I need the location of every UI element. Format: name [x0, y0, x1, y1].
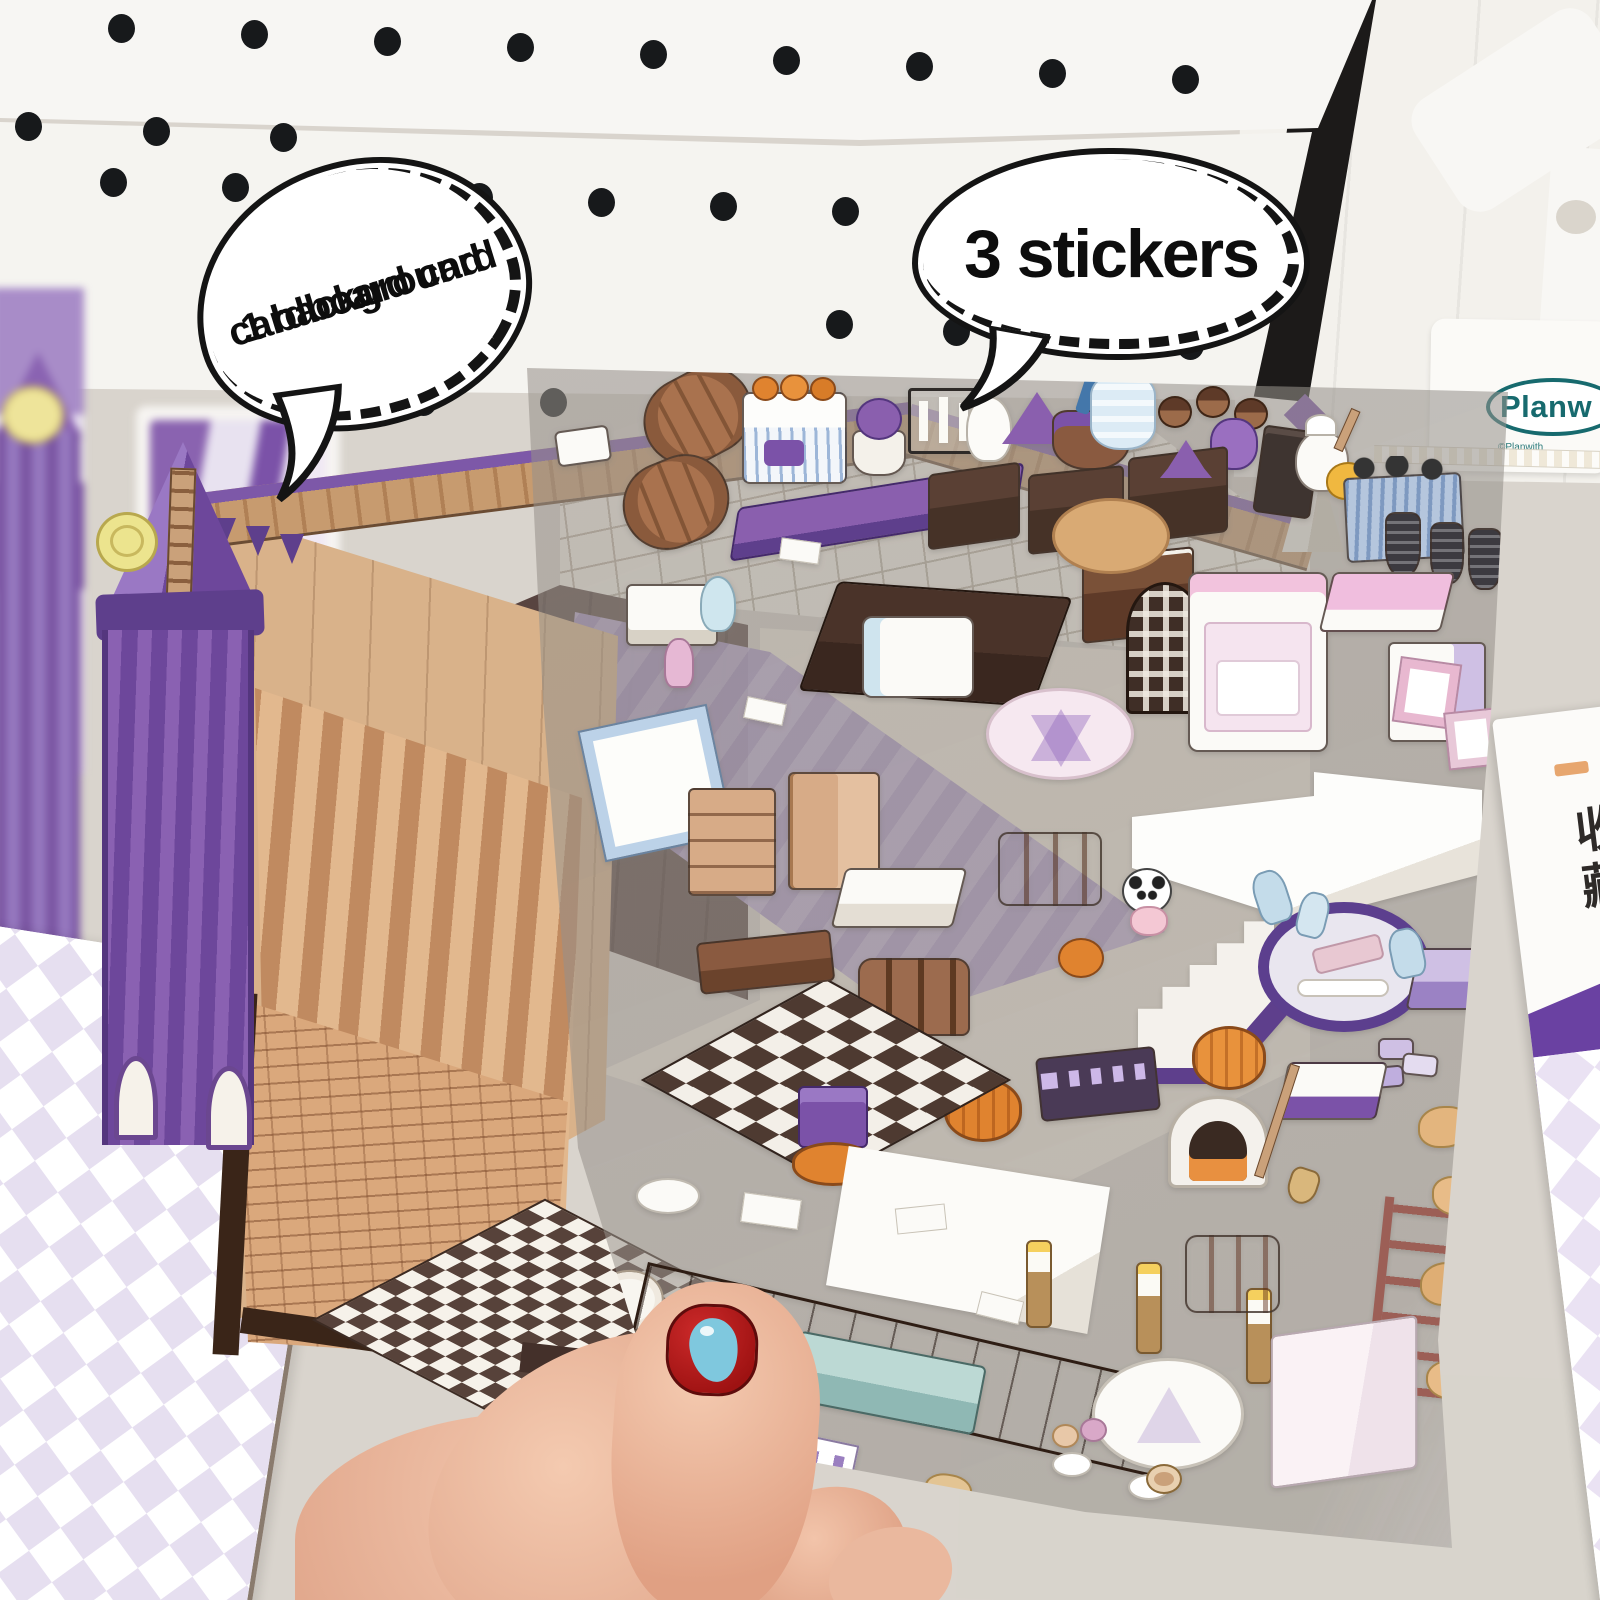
callout-right: 3 stickers	[912, 148, 1310, 360]
callout-right-label: 3 stickers	[964, 215, 1258, 293]
pool-bench-pink	[1311, 933, 1385, 975]
sticker-lavender-book-2	[1401, 1052, 1439, 1078]
sticker-pink-table	[1319, 572, 1456, 632]
sticker-card-on-counter-1	[740, 1192, 802, 1230]
sticker-donut	[1146, 1464, 1182, 1494]
sticker-white-desk	[831, 868, 968, 928]
sticker-star-table	[986, 688, 1134, 780]
sticker-white-floor-slab	[826, 1146, 1110, 1334]
sticker-arch-oven	[1168, 1096, 1268, 1188]
nail-glint	[700, 1326, 714, 1336]
sticker-acorn-1	[1158, 396, 1192, 428]
sticker-dish	[636, 1178, 700, 1214]
sticker-pumpkin-large-2	[1192, 1026, 1266, 1090]
sticker-stool-2	[1052, 1452, 1092, 1477]
sticker-pumpkin-small-4	[1058, 938, 1104, 978]
sticker-pumpkins-on-cabinet	[752, 374, 842, 404]
sticker-candlestick-2	[1136, 1262, 1162, 1354]
sticker-paper-3	[743, 696, 787, 726]
sticker-pink-trunk-2	[1185, 1235, 1280, 1313]
pumpkin-small-2	[780, 374, 809, 401]
oven-opening	[1189, 1121, 1247, 1181]
sticker-coat-1	[1385, 512, 1421, 576]
sticker-macaron-2	[1080, 1418, 1107, 1442]
sticker-paper-1	[779, 537, 822, 564]
round-table-star	[1137, 1387, 1201, 1443]
sticker-candlestick-1	[1026, 1240, 1052, 1328]
sticker-coat-3	[1468, 528, 1502, 590]
sticker-macaron-1	[1052, 1424, 1079, 1448]
sticker-trunk-stack	[998, 832, 1102, 906]
sticker-blue-ghost	[700, 576, 736, 632]
pumpkin-small-3	[810, 377, 836, 401]
sticker-acorn-2	[1196, 386, 1230, 418]
sticker-round-rug	[1052, 498, 1170, 574]
callout-right-bubble: 3 stickers	[912, 148, 1310, 360]
callout-left-line2: cardboard card	[222, 229, 502, 360]
sticker-wall-panel	[1271, 1315, 1418, 1489]
sticker-spatula	[1333, 408, 1360, 452]
sticker-school-desk-1	[928, 462, 1020, 551]
sticker-broom-bristles	[1283, 1164, 1323, 1208]
sticker-round-table-2	[1092, 1358, 1244, 1470]
candle-2	[939, 397, 948, 443]
candle-1	[919, 401, 928, 441]
callout-right-tail	[959, 323, 1085, 433]
sticker-gift-box-purple	[798, 1086, 868, 1148]
product-photo: Planw ©Planwith	[0, 0, 1600, 1600]
callout-left-tail	[261, 378, 395, 506]
sticker-bed-white-blue	[862, 616, 974, 698]
pool-bench-white	[1297, 979, 1389, 997]
canopy-bed-mattress	[1216, 660, 1300, 716]
sticker-cabinet-item	[764, 440, 804, 466]
sticker-chef-hat	[1305, 414, 1337, 436]
sticker-paper-stack	[554, 424, 612, 467]
pumpkin-small-1	[752, 376, 779, 401]
callout-left-line1: 1 background	[235, 233, 490, 356]
sticker-cabinet-striped	[742, 392, 847, 484]
sticker-plate-stack	[1090, 372, 1156, 450]
sticker-bookshelf-tan	[688, 788, 776, 896]
sticker-rune-sign	[1035, 1046, 1161, 1122]
sticker-hats-on-wardrobe	[1352, 456, 1452, 480]
sticker-card-on-counter-2	[895, 1203, 947, 1234]
sticker-canopy-bed	[1188, 572, 1328, 752]
sticker-barrel-2	[609, 441, 742, 563]
sticker-pink-figure	[664, 638, 694, 688]
sticker-cauldron-ball	[856, 398, 902, 440]
